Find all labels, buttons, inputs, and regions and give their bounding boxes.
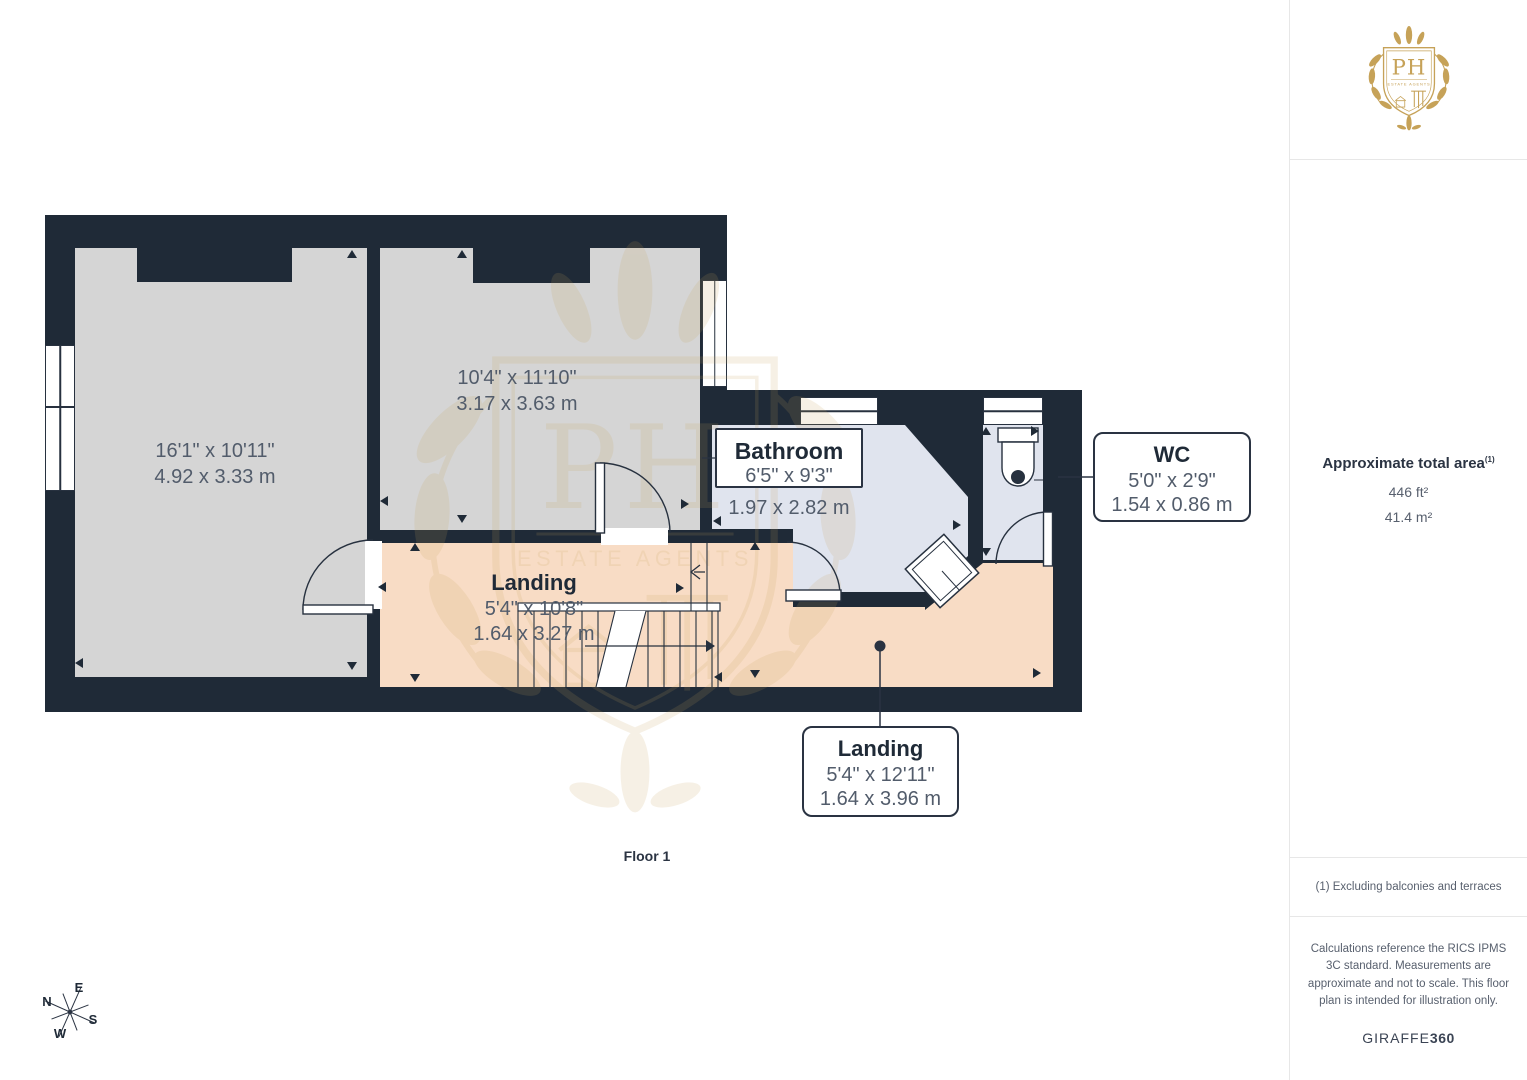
bathroom-dims-metric: 1.97 x 2.82 m [704,495,874,521]
floor-plan: 16'1" x 10'11" 4.92 x 3.33 m 10'4" x 11'… [0,0,1289,1080]
landing-name: Landing [424,569,644,597]
room-left-dims-imperial: 16'1" x 10'11" [105,438,325,464]
dim-arrow [347,250,357,258]
chimney-left [137,248,292,282]
area-metric: 41.4 m² [1290,509,1527,525]
chimney-mid [473,248,590,283]
room-mid-dims-metric: 3.17 x 3.63 m [407,391,627,417]
dim-arrow [981,548,991,556]
dim-arrow [410,543,420,551]
wc-dims-imperial: 5'0" x 2'9" [1095,469,1249,493]
brand-suffix: 360 [1430,1030,1455,1046]
dim-arrow [1033,668,1041,678]
dim-arrow [750,670,760,678]
room-mid-label: 10'4" x 11'10" 3.17 x 3.63 m [407,365,627,417]
landing-below-dims-imperial: 5'4" x 12'11" [804,763,957,787]
area-title-text: Approximate total area [1322,455,1485,472]
landing-dims-imperial: 5'4" x 10'8" [424,597,644,622]
dim-arrow [378,582,386,592]
footnote-section: (1) Excluding balconies and terraces [1290,857,1527,917]
compass-south: S [85,1012,101,1027]
landing-label: Landing 5'4" x 10'8" 1.64 x 3.27 m [424,569,644,647]
landing-below-dims-metric: 1.64 x 3.96 m [804,787,957,811]
window-wc [983,397,1043,425]
bathroom-label-box: Bathroom 6'5" x 9'3" [715,428,863,488]
dim-arrow [457,250,467,258]
dim-arrow [457,515,467,523]
compass-north: N [39,994,55,1009]
dim-arrow [681,499,689,509]
area-title: Approximate total area(1) [1290,455,1527,472]
dim-arrow [380,496,388,506]
bathroom-dims-imperial: 6'5" x 9'3" [717,464,861,488]
window-left-1 [45,345,75,407]
wc-name: WC [1095,441,1249,469]
legal-section: Calculations reference the RICS IPMS 3C … [1290,917,1527,1080]
window-left-2 [45,407,75,491]
area-title-sup: (1) [1485,455,1495,464]
dim-arrow [714,672,722,682]
landing-below-name: Landing [804,735,957,763]
compass-east: E [71,980,87,995]
info-sidebar: Approximate total area(1) 446 ft² 41.4 m… [1289,0,1527,1080]
room-mid-dims-imperial: 10'4" x 11'10" [407,365,627,391]
landing-floor-b [793,607,925,687]
dim-arrow [75,658,83,668]
dim-arrow [750,542,760,550]
footnote-text: (1) Excluding balconies and terraces [1315,881,1501,893]
wc-floor [983,425,1043,560]
brand: GIRAFFE360 [1290,1028,1527,1049]
bathroom-name: Bathroom [717,438,861,464]
logo-section [1290,0,1527,160]
page: { "plan": { "floor_label": "Floor 1", "c… [0,0,1527,1080]
dim-arrow [981,427,991,435]
area-section: Approximate total area(1) 446 ft² 41.4 m… [1290,455,1527,525]
dim-arrow [347,662,357,670]
landing-below-callout: Landing 5'4" x 12'11" 1.64 x 3.96 m [802,726,959,817]
landing-dims-metric: 1.64 x 3.27 m [424,622,644,647]
area-imperial: 446 ft² [1290,484,1527,500]
room-left-label: 16'1" x 10'11" 4.92 x 3.33 m [105,438,325,490]
brand-name: GIRAFFE [1362,1030,1430,1046]
wc-dims-metric: 1.54 x 0.86 m [1095,493,1249,517]
dim-arrow [953,520,961,530]
wc-callout: WC 5'0" x 2'9" 1.54 x 0.86 m [1093,432,1251,522]
window-bathroom [800,397,878,425]
window-mid-right [702,280,727,387]
dim-arrow [676,583,684,593]
floor-label: Floor 1 [572,848,722,864]
dim-arrow [410,674,420,682]
dim-arrow [1031,426,1039,436]
agency-logo [1356,21,1462,138]
compass-west: W [52,1026,68,1041]
room-left-dims-metric: 4.92 x 3.33 m [105,464,325,490]
legal-text: Calculations reference the RICS IPMS 3C … [1308,941,1510,1010]
